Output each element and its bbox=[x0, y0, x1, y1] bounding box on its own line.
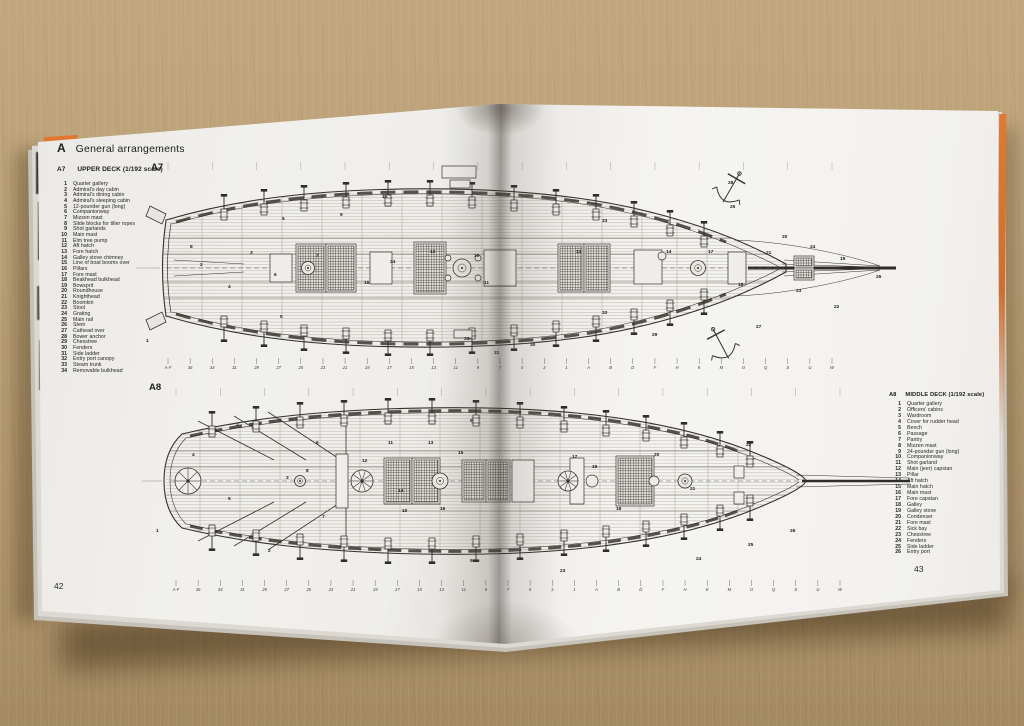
station-label: Q bbox=[764, 365, 768, 370]
quarter-gallery bbox=[146, 206, 166, 224]
plan-callout-number: 11 bbox=[388, 440, 393, 446]
station-label: K bbox=[706, 587, 709, 592]
plan-callout-number: 29 bbox=[652, 332, 658, 338]
station-label: 1 bbox=[573, 587, 575, 592]
plan-callout-number: 23 bbox=[796, 288, 802, 294]
station-label: 25 bbox=[305, 587, 311, 592]
plan-callout-number: 3 bbox=[250, 250, 253, 256]
plan-callout-number: 21 bbox=[766, 250, 772, 256]
station-label: A bbox=[594, 587, 598, 592]
plan-callout-number: 12 bbox=[430, 249, 436, 255]
station-label: U bbox=[808, 365, 812, 370]
plan-callout-number: 9 bbox=[340, 212, 343, 218]
station-label: O bbox=[750, 587, 754, 592]
plan-callout-number: 17 bbox=[708, 249, 714, 255]
station-label: 25 bbox=[297, 365, 303, 370]
station-label: 29 bbox=[253, 365, 259, 370]
plan-callout-number: 14 bbox=[666, 249, 672, 255]
photo-of-open-book: A General arrangements A7 UPPER DECK (1/… bbox=[0, 0, 1024, 726]
plan-callout-number: 4 bbox=[192, 452, 195, 458]
plan-callout-number: 33 bbox=[602, 218, 608, 224]
plan-callout-number: 25 bbox=[730, 204, 736, 210]
station-label: 17 bbox=[395, 587, 400, 592]
plan-callout-number: 18 bbox=[616, 506, 622, 512]
deck-structure bbox=[734, 492, 744, 504]
deck-structure bbox=[728, 252, 746, 284]
plan-callout-number: 24 bbox=[696, 556, 702, 562]
station-label: 34 bbox=[218, 587, 223, 592]
plan-callout-number: 17 bbox=[572, 454, 578, 460]
plan-callout-number: 22 bbox=[834, 304, 840, 310]
station-label: 15 bbox=[417, 587, 422, 592]
station-label: 17 bbox=[387, 365, 392, 370]
plan-callout-number: 8 bbox=[306, 468, 309, 474]
station-label: S bbox=[786, 365, 789, 370]
plan-callout-number: 23 bbox=[560, 568, 566, 574]
station-label: 36 bbox=[188, 365, 193, 370]
plan-a7-code: A7 bbox=[57, 166, 65, 173]
plan-a8-title: MIDDLE DECK (1/192 scale) bbox=[905, 392, 984, 398]
station-label: 21 bbox=[350, 587, 356, 592]
station-label: W bbox=[838, 587, 843, 592]
plan-callout-number: 34 bbox=[390, 259, 396, 265]
legend-item-number: 34 bbox=[55, 368, 73, 374]
station-label: H bbox=[676, 365, 680, 370]
plan-callout-number: 1 bbox=[156, 528, 159, 534]
station-label: D bbox=[631, 365, 634, 370]
page-number-left: 42 bbox=[54, 581, 63, 591]
station-label: 29 bbox=[261, 587, 267, 592]
station-label: Q bbox=[772, 587, 776, 592]
plan-callout-number: 2 bbox=[200, 262, 203, 268]
station-label: 23 bbox=[328, 587, 334, 592]
station-label: 31 bbox=[240, 587, 245, 592]
quarter-gallery bbox=[146, 312, 166, 330]
plan-callout-number: 18 bbox=[738, 282, 744, 288]
station-label: H bbox=[684, 587, 688, 592]
anchor-drawing bbox=[709, 164, 754, 210]
station-label: 19 bbox=[373, 587, 378, 592]
plan-callout-number: 3 bbox=[286, 475, 289, 481]
plan-callout-number: 13 bbox=[576, 249, 582, 255]
plan-callout-number: 20 bbox=[782, 234, 788, 240]
station-label: W bbox=[830, 365, 835, 370]
plan-callout-number: 21 bbox=[690, 486, 696, 492]
plan-callout-number: 15 bbox=[382, 194, 388, 200]
plan-callout-number: 26 bbox=[790, 528, 796, 534]
plan-callout-number: 12 bbox=[362, 458, 368, 464]
station-label: B bbox=[609, 365, 612, 370]
station-label: 27 bbox=[283, 587, 289, 592]
page-title: General arrangements bbox=[76, 143, 185, 155]
plan-callout-number: 8 bbox=[190, 244, 193, 250]
station-label: 36 bbox=[196, 587, 201, 592]
plan-callout-number: 5 bbox=[280, 314, 283, 320]
legend-item-label: Removable bulkhead bbox=[73, 368, 123, 374]
plan-callout-number: 22 bbox=[746, 442, 752, 448]
station-label: 31 bbox=[232, 365, 237, 370]
plan-callout-number: 2 bbox=[236, 422, 239, 428]
page-number-right: 43 bbox=[914, 564, 923, 574]
plan-callout-number: 7 bbox=[316, 253, 319, 259]
station-label: B bbox=[617, 587, 620, 592]
plan-callout-number: 5 bbox=[228, 496, 231, 502]
plan-callout-number: 2 bbox=[268, 548, 271, 554]
station-label: A-F bbox=[164, 365, 172, 370]
station-label: K bbox=[698, 365, 701, 370]
station-label: 13 bbox=[431, 365, 436, 370]
plan-callout-number: 24 bbox=[810, 244, 816, 250]
deck-structure bbox=[336, 454, 348, 508]
plan-callout-number: 27 bbox=[756, 324, 762, 330]
plan-callout-number: 16 bbox=[364, 280, 370, 286]
station-label: 23 bbox=[320, 365, 326, 370]
plan-callout-number: 1 bbox=[146, 338, 149, 344]
deck-structure bbox=[734, 466, 744, 478]
station-label: M bbox=[720, 365, 724, 370]
plan-callout-number: 20 bbox=[654, 452, 660, 458]
anchor-drawing bbox=[698, 320, 743, 366]
station-label: O bbox=[742, 365, 746, 370]
station-label: A-F bbox=[172, 587, 180, 592]
deck-structure bbox=[370, 252, 392, 284]
plan-callout-number: 33 bbox=[602, 310, 608, 316]
station-label: U bbox=[816, 587, 820, 592]
plan-callout-number: 10 bbox=[402, 508, 408, 514]
plan-callout-number: 19 bbox=[840, 256, 846, 262]
station-label: 34 bbox=[210, 365, 215, 370]
station-label: 1 bbox=[565, 365, 567, 370]
plan-callout-number: 13 bbox=[428, 440, 434, 446]
station-label: M bbox=[728, 587, 732, 592]
plan-callout-number: 14 bbox=[398, 488, 404, 494]
plan-callout-number: 28 bbox=[728, 180, 734, 186]
chapter-header: A General arrangements bbox=[57, 141, 185, 155]
plan-callout-number: 19 bbox=[592, 464, 598, 470]
station-label: 27 bbox=[275, 365, 281, 370]
plan-callout-number: 7 bbox=[322, 514, 325, 520]
plan-callout-number: 4 bbox=[228, 284, 231, 290]
station-label: F bbox=[662, 587, 665, 592]
station-label: 19 bbox=[365, 365, 370, 370]
plan-callout-number: 26 bbox=[876, 274, 882, 280]
station-label: F bbox=[654, 365, 657, 370]
plan-callout-number: 6 bbox=[274, 272, 277, 278]
plan-callout-number: 5 bbox=[282, 216, 285, 222]
plan-callout-number: 6 bbox=[316, 440, 319, 446]
station-label: D bbox=[639, 587, 642, 592]
section-letter: A bbox=[57, 141, 66, 155]
station-label: 21 bbox=[342, 365, 348, 370]
station-label: S bbox=[794, 587, 797, 592]
station-label: 15 bbox=[409, 365, 414, 370]
station-label: A bbox=[586, 365, 590, 370]
plan-callout-number: 25 bbox=[748, 542, 754, 548]
